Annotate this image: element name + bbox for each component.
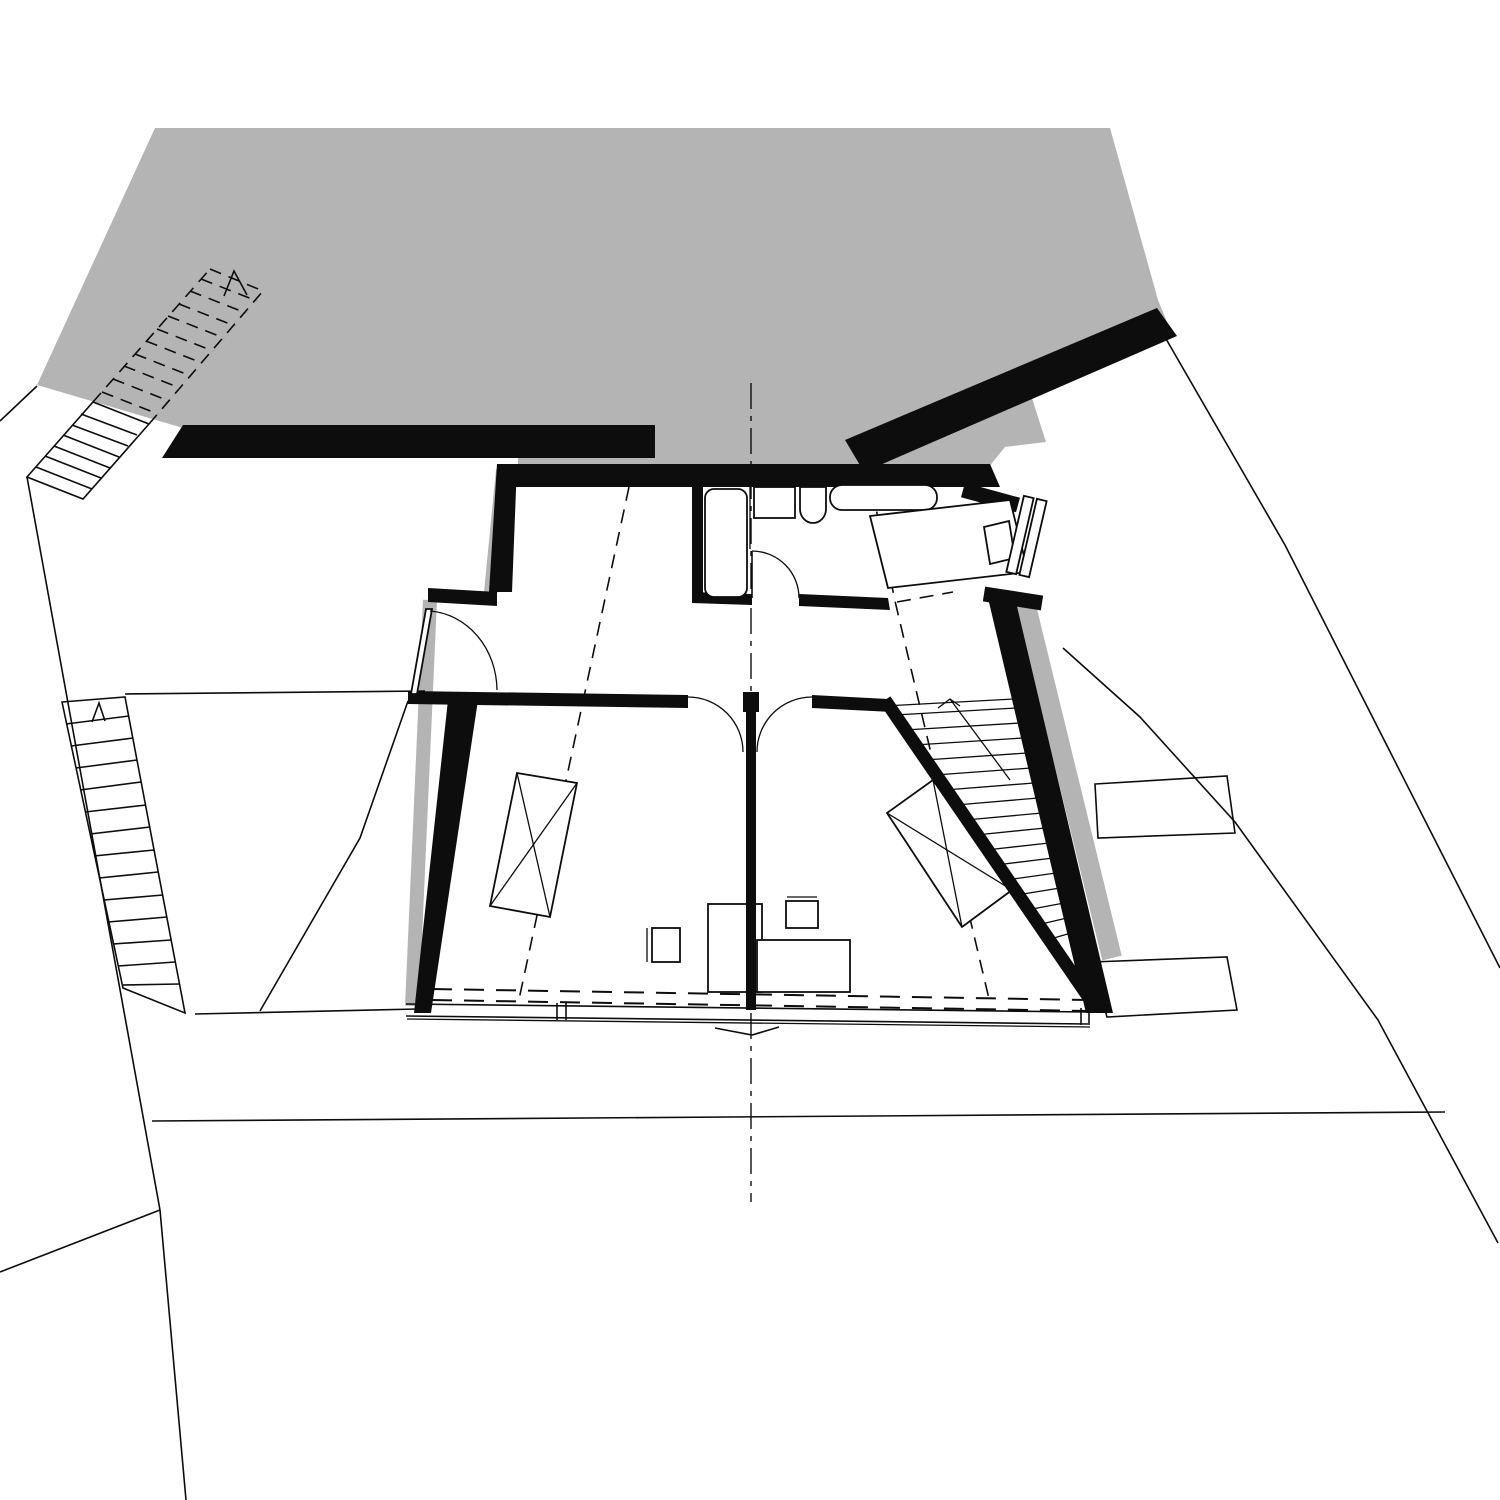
terrace-step-lower xyxy=(1092,957,1237,1017)
terrace-steps-right xyxy=(1092,776,1237,1017)
terrace-step-upper xyxy=(1095,776,1235,838)
entrance-direction-mark xyxy=(715,1027,779,1035)
wc-toilet xyxy=(800,487,826,523)
washbasin-counter xyxy=(754,487,795,518)
wall-door-stub xyxy=(743,692,759,712)
door-bathroom xyxy=(752,551,799,598)
bedroom-left-furniture xyxy=(490,773,762,992)
wall-neighbor-retaining xyxy=(162,425,655,458)
wall-bath-south-right xyxy=(799,594,890,610)
floor-plan-page xyxy=(0,0,1500,1500)
shower-tub xyxy=(705,489,747,597)
wall-west-upper xyxy=(489,464,517,592)
bedroom-right-furniture xyxy=(757,780,1012,992)
chair-left xyxy=(652,928,680,962)
desk-right xyxy=(757,940,850,992)
door-hall-right-swing xyxy=(757,697,812,752)
floor-plan-canvas xyxy=(0,0,1500,1500)
neighbor-building-mass xyxy=(37,128,1172,468)
wall-north xyxy=(506,464,1000,487)
chair-right xyxy=(786,901,818,928)
bathtub xyxy=(830,485,937,510)
wall-partition-center xyxy=(746,712,756,1010)
door-hall-left-swing xyxy=(688,697,743,752)
wall-bath-west xyxy=(692,487,703,599)
exterior-stair-mid-left xyxy=(62,697,185,1013)
